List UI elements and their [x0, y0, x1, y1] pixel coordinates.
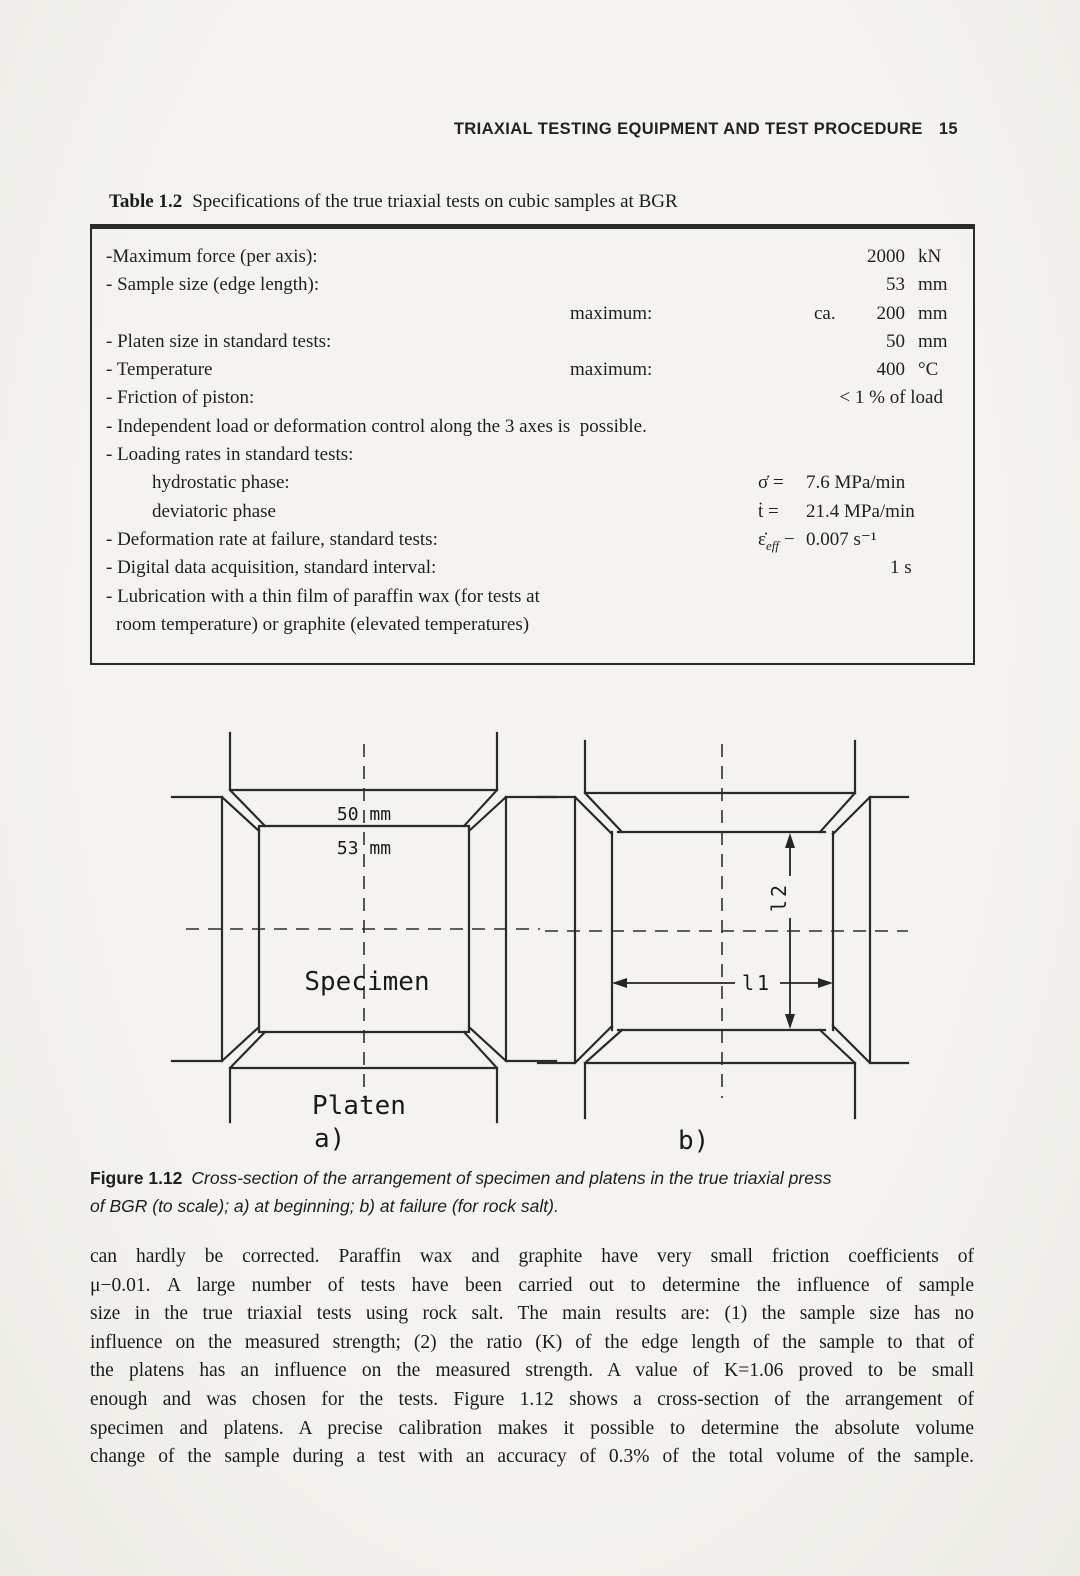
table-row: - Independent load or deformation contro…: [92, 413, 973, 441]
running-header: TRIAXIAL TESTING EQUIPMENT AND TEST PROC…: [434, 101, 958, 158]
body-line: μ−0.01. A large number of tests have bee…: [90, 1272, 974, 1301]
body-line: can hardly be corrected. Paraffin wax an…: [90, 1243, 974, 1272]
page-number: 15: [939, 120, 958, 138]
table-row: -Maximum force (per axis): 2000 kN: [92, 243, 973, 271]
row-label: - Sample size (edge length):: [106, 271, 319, 299]
specimen-width-label: 53 mm: [337, 838, 391, 859]
table-row: - Lubrication with a thin film of paraff…: [92, 583, 973, 611]
table-row: - Digital data acquisition, standard int…: [92, 554, 973, 582]
table-caption-label: Table 1.2: [109, 191, 182, 212]
row-unit: mm: [918, 271, 948, 299]
spec-table: -Maximum force (per axis): 2000 kN - Sam…: [90, 224, 975, 665]
row-value: 200: [732, 300, 905, 328]
body-line: the platens has an influence on the meas…: [90, 1357, 974, 1386]
row-value: 50: [732, 328, 905, 356]
row-unit: mm: [918, 328, 948, 356]
body-line: specimen and platens. A precise calibrat…: [90, 1415, 974, 1444]
row-value: < 1 % of load: [839, 384, 943, 412]
dim-l2-label: l2: [767, 882, 791, 912]
body-line: enough and was chosen for the tests. Fig…: [90, 1386, 974, 1415]
row-label: -Maximum force (per axis):: [106, 243, 318, 271]
row-label: hydrostatic phase:: [152, 469, 290, 497]
row-qualifier: maximum:: [570, 300, 652, 328]
table-row: - Sample size (edge length): 53 mm: [92, 271, 973, 299]
row-unit: °C: [918, 356, 938, 384]
row-label: - Independent load or deformation contro…: [106, 413, 647, 441]
row-value: 2000: [732, 243, 905, 271]
equals-sign: −: [784, 529, 795, 550]
row-unit: kN: [918, 243, 941, 271]
body-line: size in the true triaxial tests using ro…: [90, 1300, 974, 1329]
row-value: 21.4 MPa/min: [806, 498, 915, 526]
row-label: - Deformation rate at failure, standard …: [106, 526, 438, 554]
scanned-book-page: TRIAXIAL TESTING EQUIPMENT AND TEST PROC…: [0, 0, 1080, 1576]
subfigure-a-label: a): [314, 1124, 345, 1154]
row-label: - Friction of piston:: [106, 384, 254, 412]
specimen-label: Specimen: [304, 967, 429, 997]
row-label: room temperature) or graphite (elevated …: [116, 611, 529, 639]
table-row: - Platen size in standard tests: 50 mm: [92, 328, 973, 356]
table-row: - Temperature maximum: 400 °C: [92, 356, 973, 384]
rate-symbol-tau: ṫ =: [758, 498, 779, 526]
row-label: - Loading rates in standard tests:: [106, 441, 353, 469]
figure-caption-line2: of BGR (to scale); a) at beginning; b) a…: [90, 1192, 982, 1220]
platen-width-label: 50 mm: [337, 804, 391, 825]
figure-caption: Figure 1.12Cross-section of the arrangem…: [90, 1164, 982, 1220]
row-label: - Lubrication with a thin film of paraff…: [106, 583, 540, 611]
row-qualifier: maximum:: [570, 356, 652, 384]
row-unit: mm: [918, 300, 948, 328]
header-title: TRIAXIAL TESTING EQUIPMENT AND TEST PROC…: [454, 120, 923, 138]
row-label: - Temperature: [106, 356, 212, 384]
rate-symbol-sigma: σ̇ =: [758, 469, 784, 497]
platen-label: Platen: [312, 1091, 406, 1121]
dim-l1-label: l1: [742, 971, 772, 995]
table-caption-text: Specifications of the true triaxial test…: [192, 191, 677, 212]
body-line: influence on the measured strength; (2) …: [90, 1329, 974, 1358]
row-value: 1 s: [890, 554, 912, 582]
table-row: - Friction of piston: < 1 % of load: [92, 384, 973, 412]
diagram-b: l2 l1 b): [538, 741, 908, 1156]
figure-caption-label: Figure 1.12: [90, 1168, 182, 1188]
row-value: 53: [732, 271, 905, 299]
table-row: room temperature) or graphite (elevated …: [92, 611, 973, 639]
row-value: 0.007 s⁻¹: [806, 526, 877, 554]
table-row: - Loading rates in standard tests:: [92, 441, 973, 469]
body-line: change of the sample during a test with …: [90, 1443, 974, 1472]
table-row: hydrostatic phase: σ̇ = 7.6 MPa/min: [92, 469, 973, 497]
row-label: deviatoric phase: [152, 498, 276, 526]
row-value: 400: [732, 356, 905, 384]
figure-1-12: 50 mm 53 mm Specimen Platen a): [0, 700, 1080, 1160]
row-label: - Digital data acquisition, standard int…: [106, 554, 436, 582]
body-paragraph: can hardly be corrected. Paraffin wax an…: [90, 1243, 974, 1472]
epsilon-subscript: eff: [766, 538, 779, 553]
table-row: - Deformation rate at failure, standard …: [92, 526, 973, 554]
figure-caption-text: Cross-section of the arrangement of spec…: [191, 1168, 831, 1188]
epsilon-dot: ε̇: [758, 529, 766, 550]
diagram-a: 50 mm 53 mm Specimen Platen a): [172, 733, 556, 1154]
subfigure-b-label: b): [678, 1126, 709, 1156]
row-label: - Platen size in standard tests:: [106, 328, 331, 356]
table-row: deviatoric phase ṫ = 21.4 MPa/min: [92, 498, 973, 526]
table-row: maximum: ca. 200 mm: [92, 300, 973, 328]
row-value: 7.6 MPa/min: [806, 469, 905, 497]
figure-caption-line1: Figure 1.12Cross-section of the arrangem…: [90, 1164, 982, 1192]
